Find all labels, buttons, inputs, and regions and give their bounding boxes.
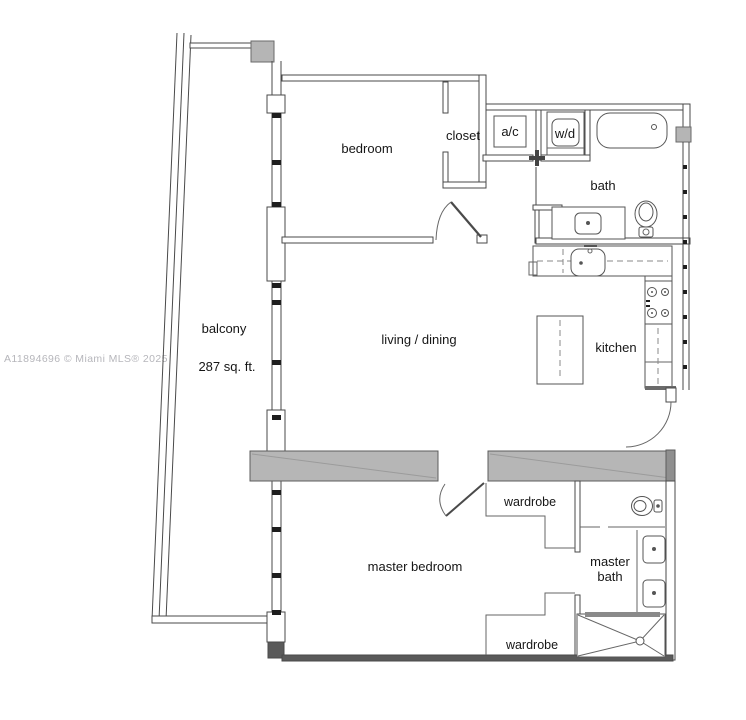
- master-bath-vanity: [637, 530, 665, 613]
- kitchen-sink: [571, 246, 605, 276]
- master-bath-label-line1: master: [590, 554, 630, 569]
- wardrobe-upper-label: wardrobe: [503, 495, 556, 509]
- ac-label: a/c: [501, 124, 519, 139]
- bath-vanity: [552, 207, 625, 239]
- bath-label: bath: [590, 178, 615, 193]
- floor-plan-drawing: bedroom closet a/c w/d bath living / din…: [0, 0, 746, 720]
- master-bath-label-line2: bath: [597, 569, 622, 584]
- left-window-wall: [267, 61, 285, 658]
- balcony-label: balcony: [202, 321, 247, 336]
- column-block: [676, 127, 691, 142]
- floor-plan-image: A11894696 © Miami MLS® 2025: [0, 0, 746, 720]
- right-window-wall: [676, 104, 691, 390]
- toilet: [635, 201, 657, 237]
- master-bedroom-label: master bedroom: [368, 559, 463, 574]
- partition-wall-right: [488, 450, 675, 481]
- bedroom-door: [436, 202, 481, 240]
- shower: [577, 612, 665, 657]
- kitchen-island: [537, 316, 583, 384]
- bedroom-walls: [282, 75, 487, 243]
- closet-label: closet: [446, 128, 480, 143]
- column-block: [251, 41, 274, 62]
- master-bedroom-door: [440, 483, 484, 516]
- balcony-railing: [152, 33, 191, 620]
- balcony-top-wall: [190, 41, 274, 62]
- wardrobe-lower-label: wardrobe: [505, 638, 558, 652]
- balcony-area-label: 287 sq. ft.: [198, 359, 255, 374]
- master-bath-toilet: [632, 497, 663, 516]
- bedroom-label: bedroom: [341, 141, 392, 156]
- wardrobe-upper: [486, 483, 575, 548]
- living-dining-label: living / dining: [381, 332, 456, 347]
- wall-junction-mark: [535, 150, 539, 166]
- balcony-bottom-wall: [152, 616, 274, 623]
- kitchen-label: kitchen: [595, 340, 636, 355]
- stove: [645, 281, 672, 324]
- wall-end-cap: [666, 450, 675, 481]
- kitchen-door: [626, 388, 676, 447]
- partition-wall-left: [250, 451, 438, 481]
- shower-drain: [636, 637, 644, 645]
- wd-label: w/d: [554, 126, 575, 141]
- bathtub: [597, 113, 667, 148]
- shower-curb: [585, 612, 660, 617]
